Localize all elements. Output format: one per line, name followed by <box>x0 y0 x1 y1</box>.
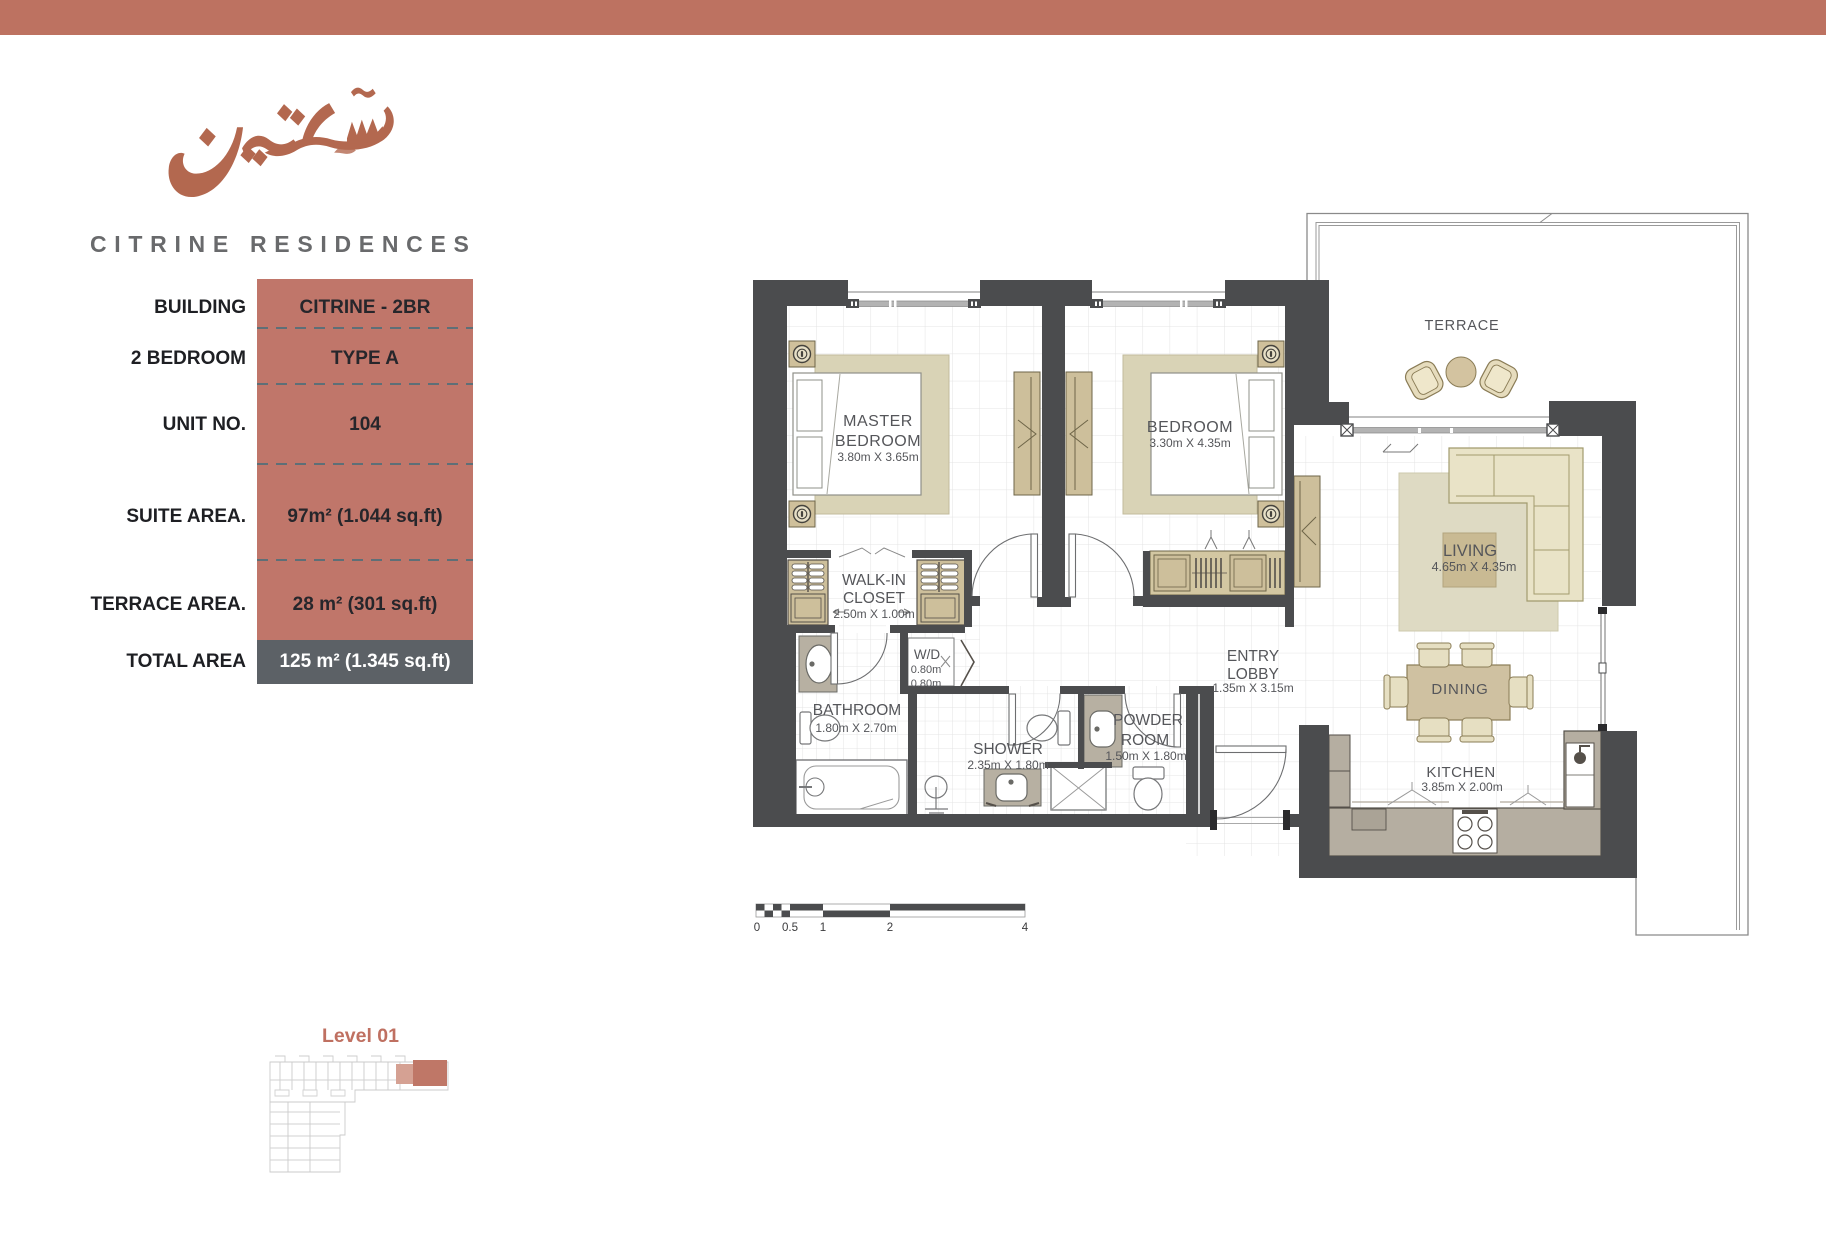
svg-text:0.80m: 0.80m <box>911 678 942 690</box>
svg-text:0: 0 <box>754 922 760 934</box>
svg-text:BATHROOM: BATHROOM <box>813 702 901 719</box>
svg-text:3.80m X 3.65m: 3.80m X 3.65m <box>837 450 918 464</box>
svg-text:ROOM: ROOM <box>1121 732 1169 749</box>
svg-text:POWDER: POWDER <box>1113 712 1183 729</box>
svg-text:ENTRY: ENTRY <box>1227 648 1279 665</box>
svg-text:3.30m X 4.35m: 3.30m X 4.35m <box>1149 436 1230 450</box>
svg-text:2.50m X 1.00m: 2.50m X 1.00m <box>833 607 914 621</box>
svg-text:LIVING: LIVING <box>1443 542 1497 560</box>
svg-text:3.85m X 2.00m: 3.85m X 2.00m <box>1421 780 1502 794</box>
svg-text:0.80m: 0.80m <box>911 664 942 676</box>
svg-text:1.50m X 1.80m: 1.50m X 1.80m <box>1105 749 1186 763</box>
svg-text:KITCHEN: KITCHEN <box>1426 764 1495 781</box>
svg-text:1: 1 <box>820 922 826 934</box>
svg-text:2.35m X 1.80m: 2.35m X 1.80m <box>967 758 1048 772</box>
svg-text:4.65m X 4.35m: 4.65m X 4.35m <box>1432 560 1517 574</box>
svg-text:1.35m X 3.15m: 1.35m X 3.15m <box>1212 681 1293 695</box>
svg-text:MASTER: MASTER <box>843 413 913 430</box>
svg-text:4: 4 <box>1022 922 1029 934</box>
svg-text:WALK-IN: WALK-IN <box>842 572 906 589</box>
svg-text:CLOSET: CLOSET <box>843 590 906 607</box>
svg-text:2: 2 <box>887 922 893 934</box>
svg-text:DINING: DINING <box>1431 681 1488 698</box>
svg-text:SHOWER: SHOWER <box>973 741 1043 758</box>
svg-text:TERRACE: TERRACE <box>1425 318 1500 334</box>
svg-text:BEDROOM: BEDROOM <box>835 433 921 450</box>
svg-text:0.5: 0.5 <box>782 922 798 934</box>
svg-text:W/D: W/D <box>914 647 940 662</box>
svg-text:BEDROOM: BEDROOM <box>1147 419 1233 436</box>
svg-text:1.80m X 2.70m: 1.80m X 2.70m <box>815 721 896 735</box>
